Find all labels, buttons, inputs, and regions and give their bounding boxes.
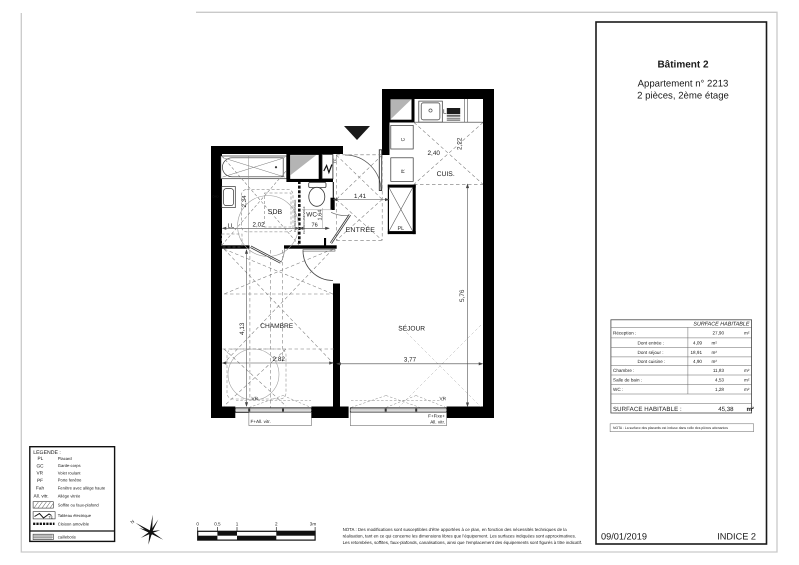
svg-text:All. vitr.: All. vitr. (34, 494, 49, 499)
svg-text:m²: m² (747, 406, 754, 413)
svg-text:4,13: 4,13 (239, 322, 246, 335)
svg-text:WC: WC (306, 212, 317, 219)
svg-text:INDICE 2: INDICE 2 (717, 532, 756, 542)
svg-text:Fah: Fah (36, 486, 44, 491)
svg-text:Réception :: Réception : (613, 330, 636, 335)
svg-text:m²: m² (712, 359, 718, 364)
svg-text:Dont entrée :: Dont entrée : (638, 340, 665, 345)
svg-text:LL: LL (228, 222, 235, 229)
svg-text:Les retombées, soffites, faux-: Les retombées, soffites, faux-plafonds, … (343, 540, 582, 545)
svg-text:CHAMBRE: CHAMBRE (260, 323, 294, 330)
svg-text:5,76: 5,76 (459, 289, 466, 302)
svg-text:27,90: 27,90 (713, 330, 725, 335)
svg-text:SURFACE HABITABLE: SURFACE HABITABLE (693, 322, 750, 328)
svg-text:C: C (401, 137, 407, 141)
svg-text:11,83: 11,83 (713, 368, 725, 373)
svg-text:ENTRÉE: ENTRÉE (346, 225, 376, 234)
svg-text:SDB: SDB (268, 209, 283, 216)
svg-text:2 pièces, 2ème étage: 2 pièces, 2ème étage (637, 91, 729, 102)
svg-text:Salle de bain :: Salle de bain : (613, 378, 642, 383)
svg-text:3,77: 3,77 (404, 357, 417, 364)
svg-text:Volet roulant: Volet roulant (58, 471, 82, 476)
svg-text:Chambre :: Chambre : (613, 368, 634, 373)
svg-text:TE: TE (49, 515, 54, 519)
svg-text:caillebotis: caillebotis (58, 535, 76, 540)
svg-text:2,22: 2,22 (457, 137, 464, 150)
svg-text:Appartement n° 2213: Appartement n° 2213 (638, 79, 729, 90)
svg-text:VR: VR (252, 396, 259, 401)
svg-text:Dont séjour :: Dont séjour : (638, 350, 664, 355)
svg-text:m²: m² (744, 368, 750, 373)
svg-text:CLOISON AMOVIBLE: CLOISON AMOVIBLE (302, 206, 306, 234)
svg-text:m²: m² (744, 378, 750, 383)
svg-text:PL: PL (38, 456, 44, 461)
svg-text:m²: m² (712, 340, 718, 345)
svg-text:réalisation, tant en ce qui co: réalisation, tant en ce qui concerne les… (343, 533, 576, 538)
svg-text:Garde-corps: Garde-corps (58, 463, 81, 468)
svg-text:Cloison amovible: Cloison amovible (58, 521, 90, 526)
svg-text:CUIS.: CUIS. (437, 171, 455, 178)
svg-text:m²: m² (712, 350, 718, 355)
svg-text:PL: PL (398, 226, 405, 232)
svg-text:09/01/2019: 09/01/2019 (601, 532, 647, 542)
svg-text:Placard: Placard (58, 456, 73, 461)
svg-text:m²: m² (744, 387, 750, 392)
svg-text:F+All. vitr.: F+All. vitr. (251, 419, 271, 424)
svg-text:F+Fixe+: F+Fixe+ (428, 414, 445, 419)
svg-text:All. vitr.: All. vitr. (430, 420, 445, 425)
svg-text:GC: GC (37, 463, 45, 468)
svg-text:1,41: 1,41 (354, 193, 367, 200)
svg-text:VR: VR (440, 396, 447, 401)
svg-text:LEGENDE :: LEGENDE : (33, 450, 61, 456)
svg-text:NOTA : Des modifications sont: NOTA : Des modifications sont susceptibl… (343, 527, 568, 532)
svg-text:4,09: 4,09 (693, 340, 702, 345)
svg-text:76: 76 (312, 223, 318, 229)
svg-text:18,91: 18,91 (691, 350, 703, 355)
svg-text:1,28: 1,28 (715, 387, 724, 392)
svg-text:PF: PF (37, 478, 43, 483)
svg-text:Porte fenêtre: Porte fenêtre (58, 478, 82, 483)
svg-text:m²: m² (744, 330, 750, 335)
svg-text:0.5: 0.5 (214, 522, 221, 527)
svg-text:2,40: 2,40 (428, 150, 441, 157)
svg-text:2: 2 (275, 522, 278, 527)
svg-text:Dont cuisine :: Dont cuisine : (638, 359, 666, 364)
svg-text:R: R (401, 169, 407, 173)
svg-text:NOTA : La surface des placards: NOTA : La surface des placards est inclu… (613, 426, 728, 430)
svg-text:45,38: 45,38 (718, 406, 734, 413)
svg-text:Bâtiment 2: Bâtiment 2 (657, 60, 709, 71)
svg-text:WC :: WC : (613, 387, 623, 392)
svg-text:4,53: 4,53 (715, 378, 724, 383)
svg-text:VR: VR (37, 471, 44, 476)
svg-text:0: 0 (196, 522, 199, 527)
svg-text:4,90: 4,90 (693, 359, 702, 364)
svg-text:SURFACE HABITABLE :: SURFACE HABITABLE : (613, 406, 682, 413)
svg-text:Fenêtre avec allège haute: Fenêtre avec allège haute (58, 485, 106, 490)
svg-text:CHD: CHD (212, 195, 219, 199)
svg-text:TE: TE (333, 158, 338, 163)
svg-text:1,64: 1,64 (317, 210, 323, 221)
svg-text:SÉJOUR: SÉJOUR (398, 325, 425, 333)
svg-text:1: 1 (236, 522, 239, 527)
svg-text:Tableau électrique: Tableau électrique (58, 513, 92, 518)
svg-text:Allège vitrée: Allège vitrée (58, 493, 81, 498)
svg-text:3m: 3m (310, 522, 317, 527)
svg-text:2,02: 2,02 (253, 221, 266, 228)
svg-text:2,34: 2,34 (241, 195, 248, 208)
svg-text:L: L (443, 109, 447, 116)
svg-text:Soffite ou faux-plafond: Soffite ou faux-plafond (58, 503, 100, 508)
